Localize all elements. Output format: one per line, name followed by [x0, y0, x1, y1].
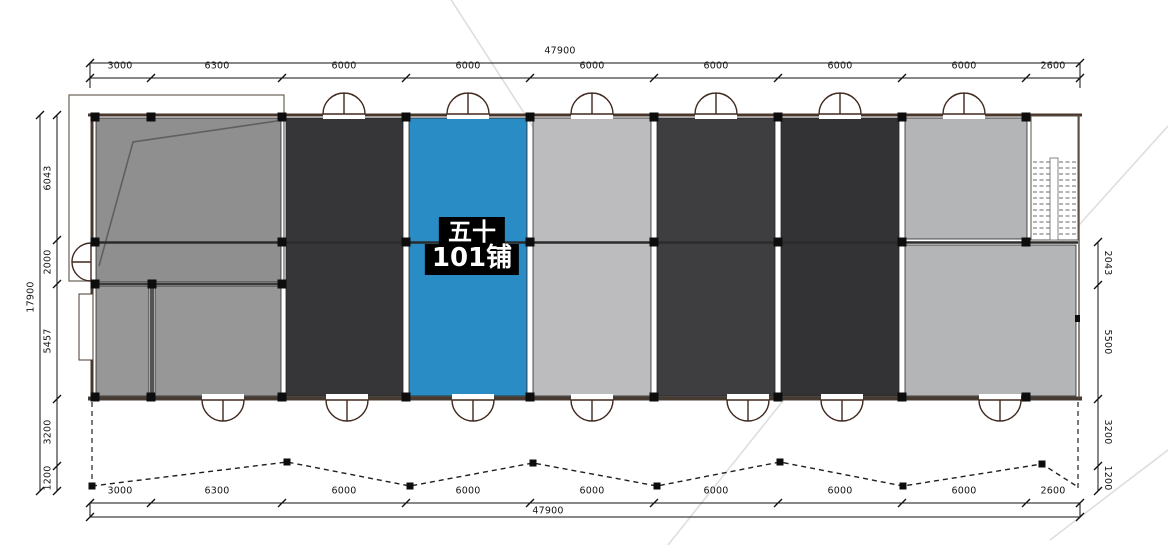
- unit-bay-8-lower[interactable]: [905, 245, 1076, 396]
- dim-top-total: 47900: [544, 46, 575, 56]
- dim-top-seg-3: 6000: [332, 61, 357, 71]
- dim-top-seg-6: 6000: [704, 61, 729, 71]
- dim-bottom-total: 47900: [532, 506, 563, 516]
- dim-bottom-seg-2: 6300: [205, 486, 230, 496]
- dim-right-seg-1: 2043: [1102, 251, 1112, 276]
- staircase: [1031, 116, 1078, 240]
- dim-top-seg-7: 6000: [828, 61, 853, 71]
- dim-bottom-seg-1: 3000: [108, 486, 133, 496]
- dim-bottom-seg-4: 6000: [456, 486, 481, 496]
- unit-bay-6[interactable]: [657, 118, 775, 396]
- selected-unit-number: 101铺: [425, 244, 519, 275]
- dim-bottom-seg-3: 6000: [332, 486, 357, 496]
- dim-bottom-seg-7: 6000: [828, 486, 853, 496]
- dim-top-seg-5: 6000: [580, 61, 605, 71]
- selected-unit-name: 五十: [439, 217, 505, 246]
- dim-bottom-seg-9: 2600: [1041, 486, 1066, 496]
- dim-bottom-seg-8: 6000: [952, 486, 977, 496]
- dim-bottom-seg-6: 6000: [704, 486, 729, 496]
- dim-left-seg-3: 5457: [43, 329, 53, 354]
- dim-right-seg-4: 1200: [1102, 466, 1112, 491]
- dim-right-seg-3: 3200: [1102, 420, 1112, 445]
- dim-left-seg-4: 3200: [43, 420, 53, 445]
- window-symbol: [79, 294, 93, 360]
- unit-west-room-large[interactable]: [155, 286, 281, 396]
- double-door-symbol-left: [72, 242, 96, 282]
- dim-top-seg-1: 3000: [108, 61, 133, 71]
- unit-fills: [96, 118, 1076, 396]
- unit-west-room-small[interactable]: [96, 286, 149, 396]
- floor-plan-page: 3000 6300 6000 6000 6000 6000 6000 6000 …: [0, 0, 1168, 545]
- unit-bay-7[interactable]: [781, 118, 899, 396]
- dim-right-seg-2: 5500: [1102, 330, 1112, 355]
- dim-left-total: 17900: [26, 281, 36, 312]
- dim-left-seg-5: 1200: [43, 466, 53, 491]
- dim-left-seg-2: 2000: [43, 250, 53, 275]
- unit-bay-8-upper[interactable]: [905, 118, 1027, 239]
- floor-plan-drawing: [0, 0, 1168, 545]
- unit-bay-5[interactable]: [533, 118, 651, 396]
- selected-unit-label[interactable]: 五十 101铺: [425, 217, 519, 275]
- unit-west-large[interactable]: [96, 118, 281, 282]
- dim-bottom-seg-5: 6000: [580, 486, 605, 496]
- dim-top-seg-2: 6300: [205, 61, 230, 71]
- dim-top-seg-4: 6000: [456, 61, 481, 71]
- unit-bay-3[interactable]: [286, 118, 403, 396]
- dim-top-seg-8: 6000: [952, 61, 977, 71]
- dim-left-seg-1: 6043: [43, 166, 53, 191]
- dim-top-seg-9: 2600: [1041, 61, 1066, 71]
